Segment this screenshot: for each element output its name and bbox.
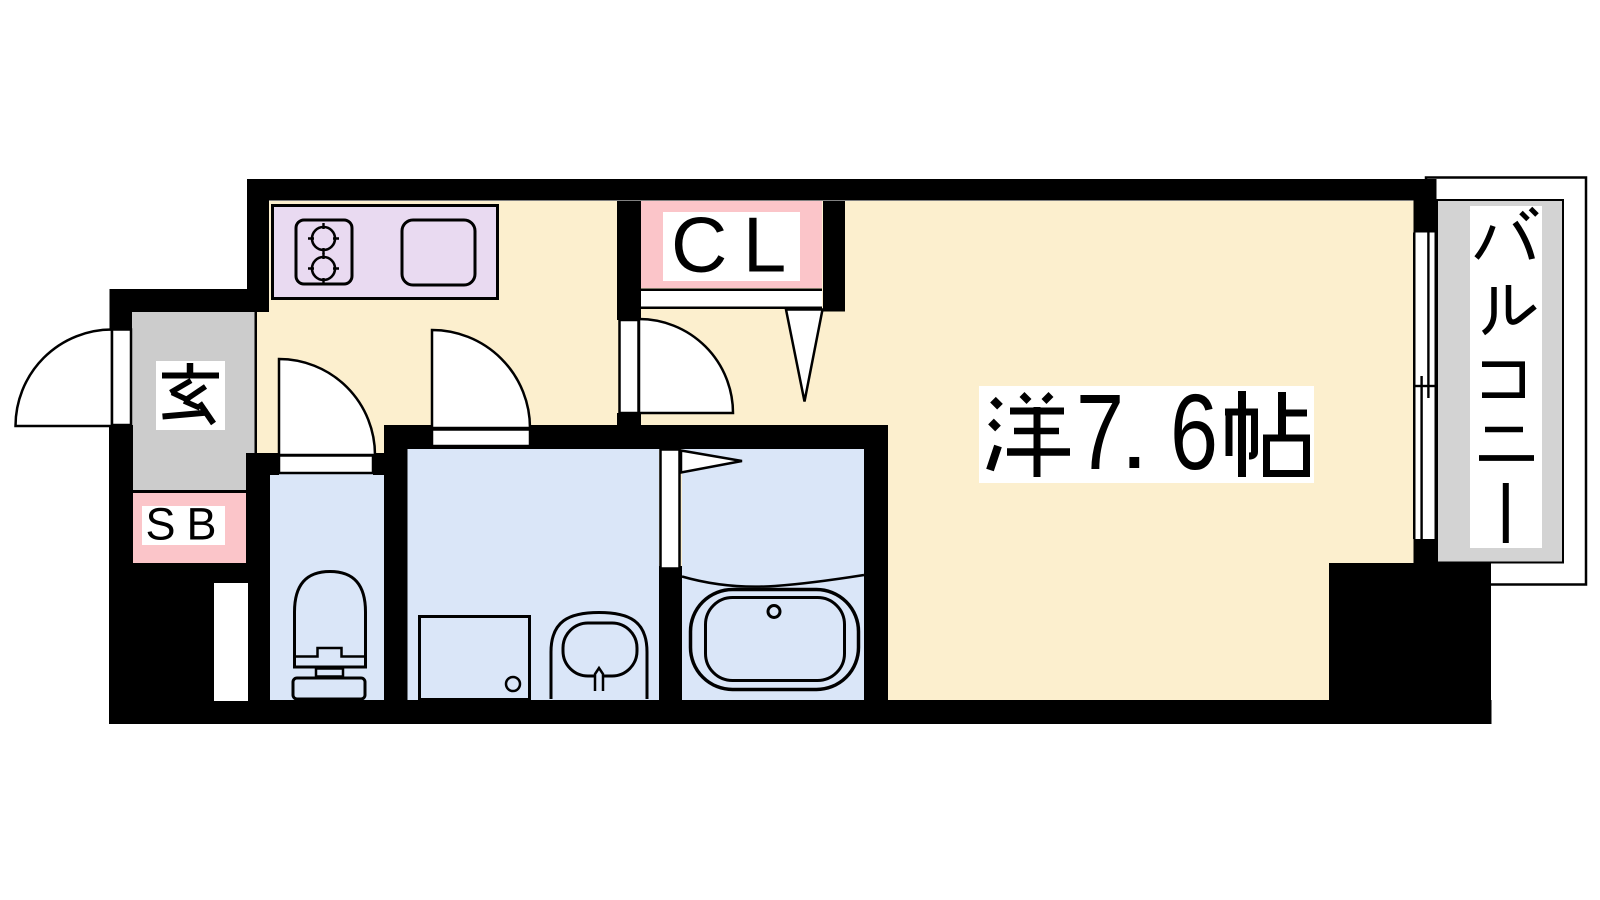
svg-text:SB: SB — [146, 499, 228, 550]
svg-text:7: 7 — [1076, 371, 1124, 492]
svg-text:6: 6 — [1170, 371, 1218, 492]
svg-text:CL: CL — [671, 201, 802, 289]
svg-text:.: . — [1120, 375, 1149, 490]
